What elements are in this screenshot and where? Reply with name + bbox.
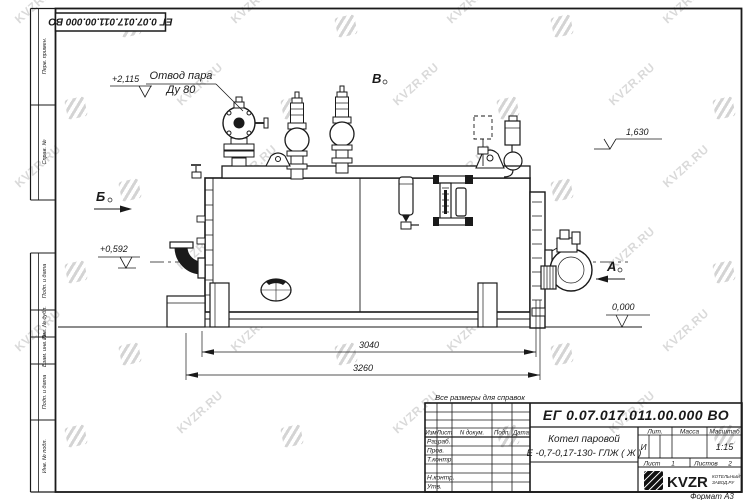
view-arrow-v: В: [372, 71, 387, 86]
row-tkontr: Т.контр.: [427, 457, 453, 464]
frame-label: Взам. инв. №: [42, 333, 48, 367]
frame-label: Перв. примен.: [42, 38, 48, 75]
steam-outlet-label-line1: Отвод пара: [150, 70, 213, 82]
shell-stub-1: [197, 216, 205, 222]
svg-text:Б: Б: [96, 189, 105, 204]
scale-label: Масштаб: [709, 428, 740, 436]
sheet-value: 1: [671, 461, 675, 468]
mass-label: Масса: [680, 429, 700, 436]
sheet-label: Лист: [643, 461, 661, 468]
air-valve: [191, 165, 201, 178]
svg-text:+0,592: +0,592: [100, 244, 128, 254]
view-arrow-a: А: [596, 259, 625, 283]
col-ndocum: N докум.: [460, 431, 484, 437]
safety-valve-2: [330, 86, 354, 173]
kvzr-logo-text: KVZR: [667, 474, 708, 491]
svg-text:3040: 3040: [359, 340, 379, 350]
row-razrab: Разраб.: [427, 438, 451, 446]
row-prov: Пров.: [427, 448, 444, 455]
drain-stub: [532, 308, 545, 316]
litera-value: И: [640, 442, 647, 452]
row-utv: Утв.: [426, 484, 442, 491]
svg-text:А: А: [606, 259, 616, 274]
logo-caption-2: ЗАВОД.РУ: [712, 480, 735, 485]
sheets-value: 2: [727, 461, 732, 468]
frame-label: Подп. и дата: [42, 375, 48, 409]
svg-text:+2,115: +2,115: [112, 74, 140, 84]
frame-label-column: Перв. примен. Справ. № Подп. и дата Инв.…: [42, 38, 48, 473]
burner-assembly: [541, 230, 592, 291]
doc-number-rotated: ЕГ 0.07.017.011.00.000 ВО: [48, 16, 172, 27]
elevation-mark-1630: 1,630: [594, 127, 662, 149]
col-data: Дата: [512, 431, 529, 437]
frame-label: Подп. и дата: [42, 264, 48, 298]
elevation-mark-0592: +0,592: [98, 244, 140, 268]
frame-label: Справ. №: [42, 139, 48, 164]
col-podp: Подп.: [494, 431, 510, 437]
kvzr-logo-icon: [644, 471, 663, 490]
col-izm: Изм: [425, 431, 436, 437]
reference-note: Все размеры для справок: [435, 393, 525, 402]
support-leg-left: [210, 283, 229, 327]
frame-label: Инв. № подл.: [42, 439, 48, 473]
manhole: [261, 279, 291, 301]
steam-outlet-valve: [223, 97, 268, 166]
boiler-assembly-drawing: Перв. примен. Справ. № Подп. и дата Инв.…: [0, 0, 750, 500]
row-nkontr: Н.контр.: [427, 475, 455, 482]
product-title-line2: Е -0,7-0,17-130- ГЛЖ ( Ж ): [527, 448, 642, 459]
product-title-line1: Котел паровой: [548, 434, 620, 445]
view-arrow-b: Б: [94, 189, 132, 213]
sheets-label: Листов: [693, 461, 718, 468]
steam-outlet-label-line2: Ду 80: [165, 84, 197, 96]
format-label: Формат А3: [690, 492, 734, 500]
svg-text:В: В: [372, 71, 381, 86]
logo-caption-1: КОТЕЛЬНЫЙ: [712, 472, 741, 479]
svg-text:3260: 3260: [353, 363, 373, 373]
drawing-sheet: KVZR.RUKVZR.RUKVZR.RUKVZR.RUKVZR.RUKVZR.…: [0, 0, 750, 500]
top-doc-number-box: ЕГ 0.07.017.011.00.000 ВО: [48, 13, 172, 31]
scale-value: 1:15: [716, 442, 735, 452]
doc-number: ЕГ 0.07.017.011.00.000 ВО: [543, 407, 729, 423]
litera-label: Лит.: [646, 429, 662, 436]
svg-text:0,000: 0,000: [612, 302, 635, 312]
elevation-mark-2115: +2,115: [110, 74, 152, 97]
support-leg-right: [478, 283, 497, 327]
elevation-mark-0000: 0,000: [606, 302, 650, 327]
title-block-text: Все размеры для справок ЕГ 0.07.017.011.…: [425, 393, 741, 500]
svg-text:1,630: 1,630: [626, 127, 649, 137]
feedwater-elbow: [167, 242, 205, 327]
boiler-side-view: [58, 86, 642, 328]
col-list: Лист: [436, 431, 452, 437]
shell-stub-2: [197, 238, 205, 244]
